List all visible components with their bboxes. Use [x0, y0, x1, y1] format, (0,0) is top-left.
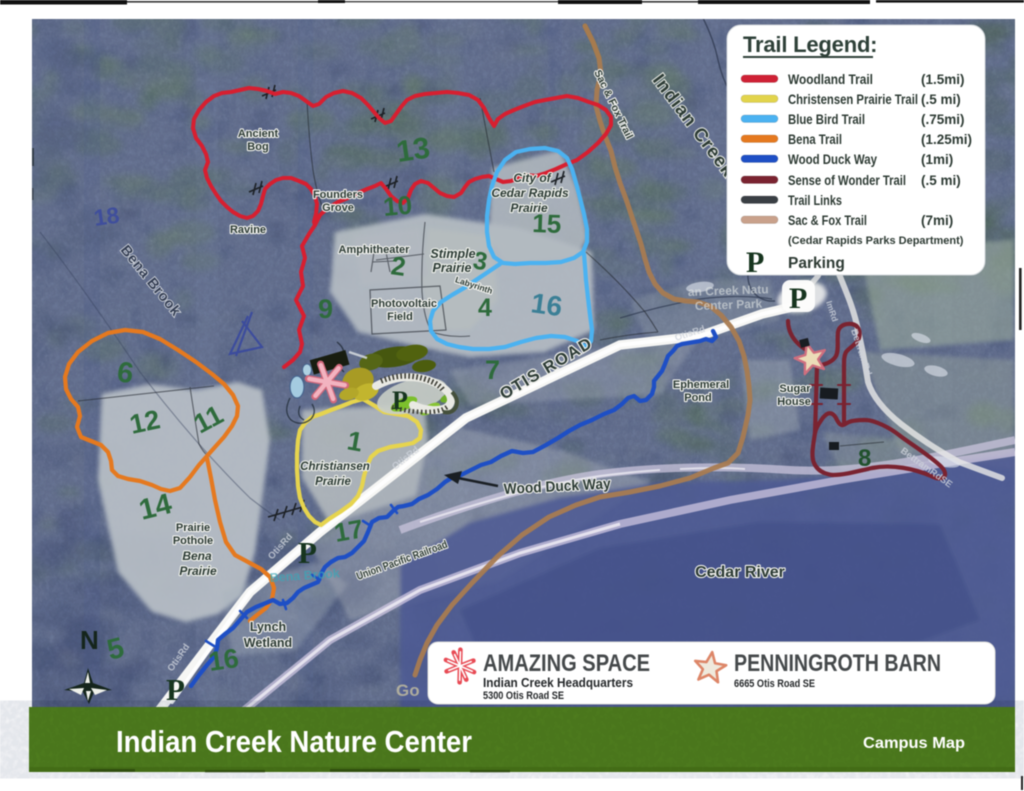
svg-text:Sense of Wonder Trail: Sense of Wonder Trail: [788, 173, 906, 188]
svg-text:Wood Duck Way: Wood Duck Way: [788, 152, 877, 167]
svg-text:18: 18: [92, 202, 121, 231]
svg-text:Christensen Prairie Trail: Christensen Prairie Trail: [788, 92, 918, 107]
svg-text:P: P: [166, 672, 185, 707]
svg-text:16: 16: [529, 287, 564, 322]
svg-text:Sac & Fox Trail: Sac & Fox Trail: [788, 213, 867, 228]
svg-text:(.5 mi): (.5 mi): [921, 173, 961, 188]
svg-text:Founders: Founders: [313, 189, 363, 201]
svg-text:(1mi): (1mi): [921, 152, 953, 167]
svg-text:Wetland: Wetland: [244, 636, 292, 650]
svg-text:Go: Go: [396, 681, 420, 700]
svg-text:Prairie: Prairie: [510, 201, 548, 215]
svg-text:10: 10: [382, 190, 413, 222]
svg-text:Trail Links: Trail Links: [788, 193, 842, 208]
svg-text:4: 4: [478, 294, 492, 322]
svg-text:Stimple: Stimple: [430, 247, 475, 261]
svg-text:Prairie: Prairie: [315, 476, 351, 488]
svg-text:Prairie: Prairie: [179, 564, 217, 578]
svg-text:Woodland Trail: Woodland Trail: [788, 72, 873, 87]
svg-text:9: 9: [318, 294, 333, 324]
svg-text:Campus Map: Campus Map: [863, 735, 965, 752]
svg-text:AMAZING SPACE: AMAZING SPACE: [483, 650, 650, 677]
svg-text:6665 Otis Road SE: 6665 Otis Road SE: [734, 678, 815, 690]
svg-text:P: P: [746, 246, 764, 279]
svg-text:12: 12: [127, 404, 163, 440]
svg-text:(7mi): (7mi): [921, 213, 953, 228]
svg-text:Blue Bird Trail: Blue Bird Trail: [788, 112, 865, 127]
svg-text:Parking: Parking: [788, 255, 845, 272]
svg-text:(.5 mi): (.5 mi): [921, 92, 961, 107]
svg-text:Amphitheater: Amphitheater: [339, 244, 411, 256]
svg-text:Center Park: Center Park: [695, 297, 763, 313]
svg-text:Grove: Grove: [322, 202, 354, 214]
svg-text:P: P: [298, 535, 317, 570]
svg-text:P: P: [392, 386, 408, 415]
svg-text:Ancient: Ancient: [238, 128, 279, 140]
svg-text:City of: City of: [513, 171, 551, 185]
svg-text:PENNINGROTH BARN: PENNINGROTH BARN: [734, 650, 941, 677]
svg-text:(.75mi): (.75mi): [921, 112, 965, 127]
svg-text:Prairie: Prairie: [433, 261, 472, 275]
svg-text:Ravine: Ravine: [230, 224, 266, 236]
svg-text:Trail Legend:: Trail Legend:: [743, 32, 877, 57]
svg-text:Cedar River: Cedar River: [695, 564, 785, 581]
svg-text:Christiansen: Christiansen: [300, 461, 370, 473]
svg-text:Sugar: Sugar: [779, 383, 811, 395]
svg-text:16: 16: [207, 643, 241, 677]
svg-text:Bena: Bena: [182, 549, 212, 563]
svg-text:17: 17: [332, 513, 366, 548]
svg-text:House: House: [777, 396, 811, 408]
svg-text:Indian Creek Nature Center: Indian Creek Nature Center: [116, 724, 472, 759]
svg-text:Bog: Bog: [247, 141, 268, 153]
svg-text:Pothole: Pothole: [173, 535, 213, 547]
svg-text:Indian Creek Headquarters: Indian Creek Headquarters: [483, 675, 633, 690]
svg-text:Bena Trail: Bena Trail: [788, 132, 842, 147]
svg-text:(Cedar Rapids Parks Department: (Cedar Rapids Parks Department): [788, 235, 964, 247]
svg-text:13: 13: [394, 132, 432, 169]
svg-text:Prairie: Prairie: [176, 522, 210, 534]
svg-text:8: 8: [858, 445, 871, 472]
svg-text:Ephemeral: Ephemeral: [673, 379, 729, 391]
svg-text:Field: Field: [387, 311, 413, 323]
svg-text:(1.25mi): (1.25mi): [921, 132, 972, 147]
svg-text:(1.5mi): (1.5mi): [921, 72, 965, 87]
svg-text:Pond: Pond: [684, 392, 712, 404]
svg-text:N: N: [80, 625, 99, 655]
svg-text:Cedar Rapids: Cedar Rapids: [491, 186, 569, 200]
svg-text:Lynch: Lynch: [250, 620, 286, 634]
svg-text:P: P: [789, 282, 807, 315]
svg-text:Photovoltaic: Photovoltaic: [371, 298, 437, 310]
svg-text:5300 Otis Road SE: 5300 Otis Road SE: [483, 690, 564, 702]
svg-text:7: 7: [485, 355, 500, 385]
